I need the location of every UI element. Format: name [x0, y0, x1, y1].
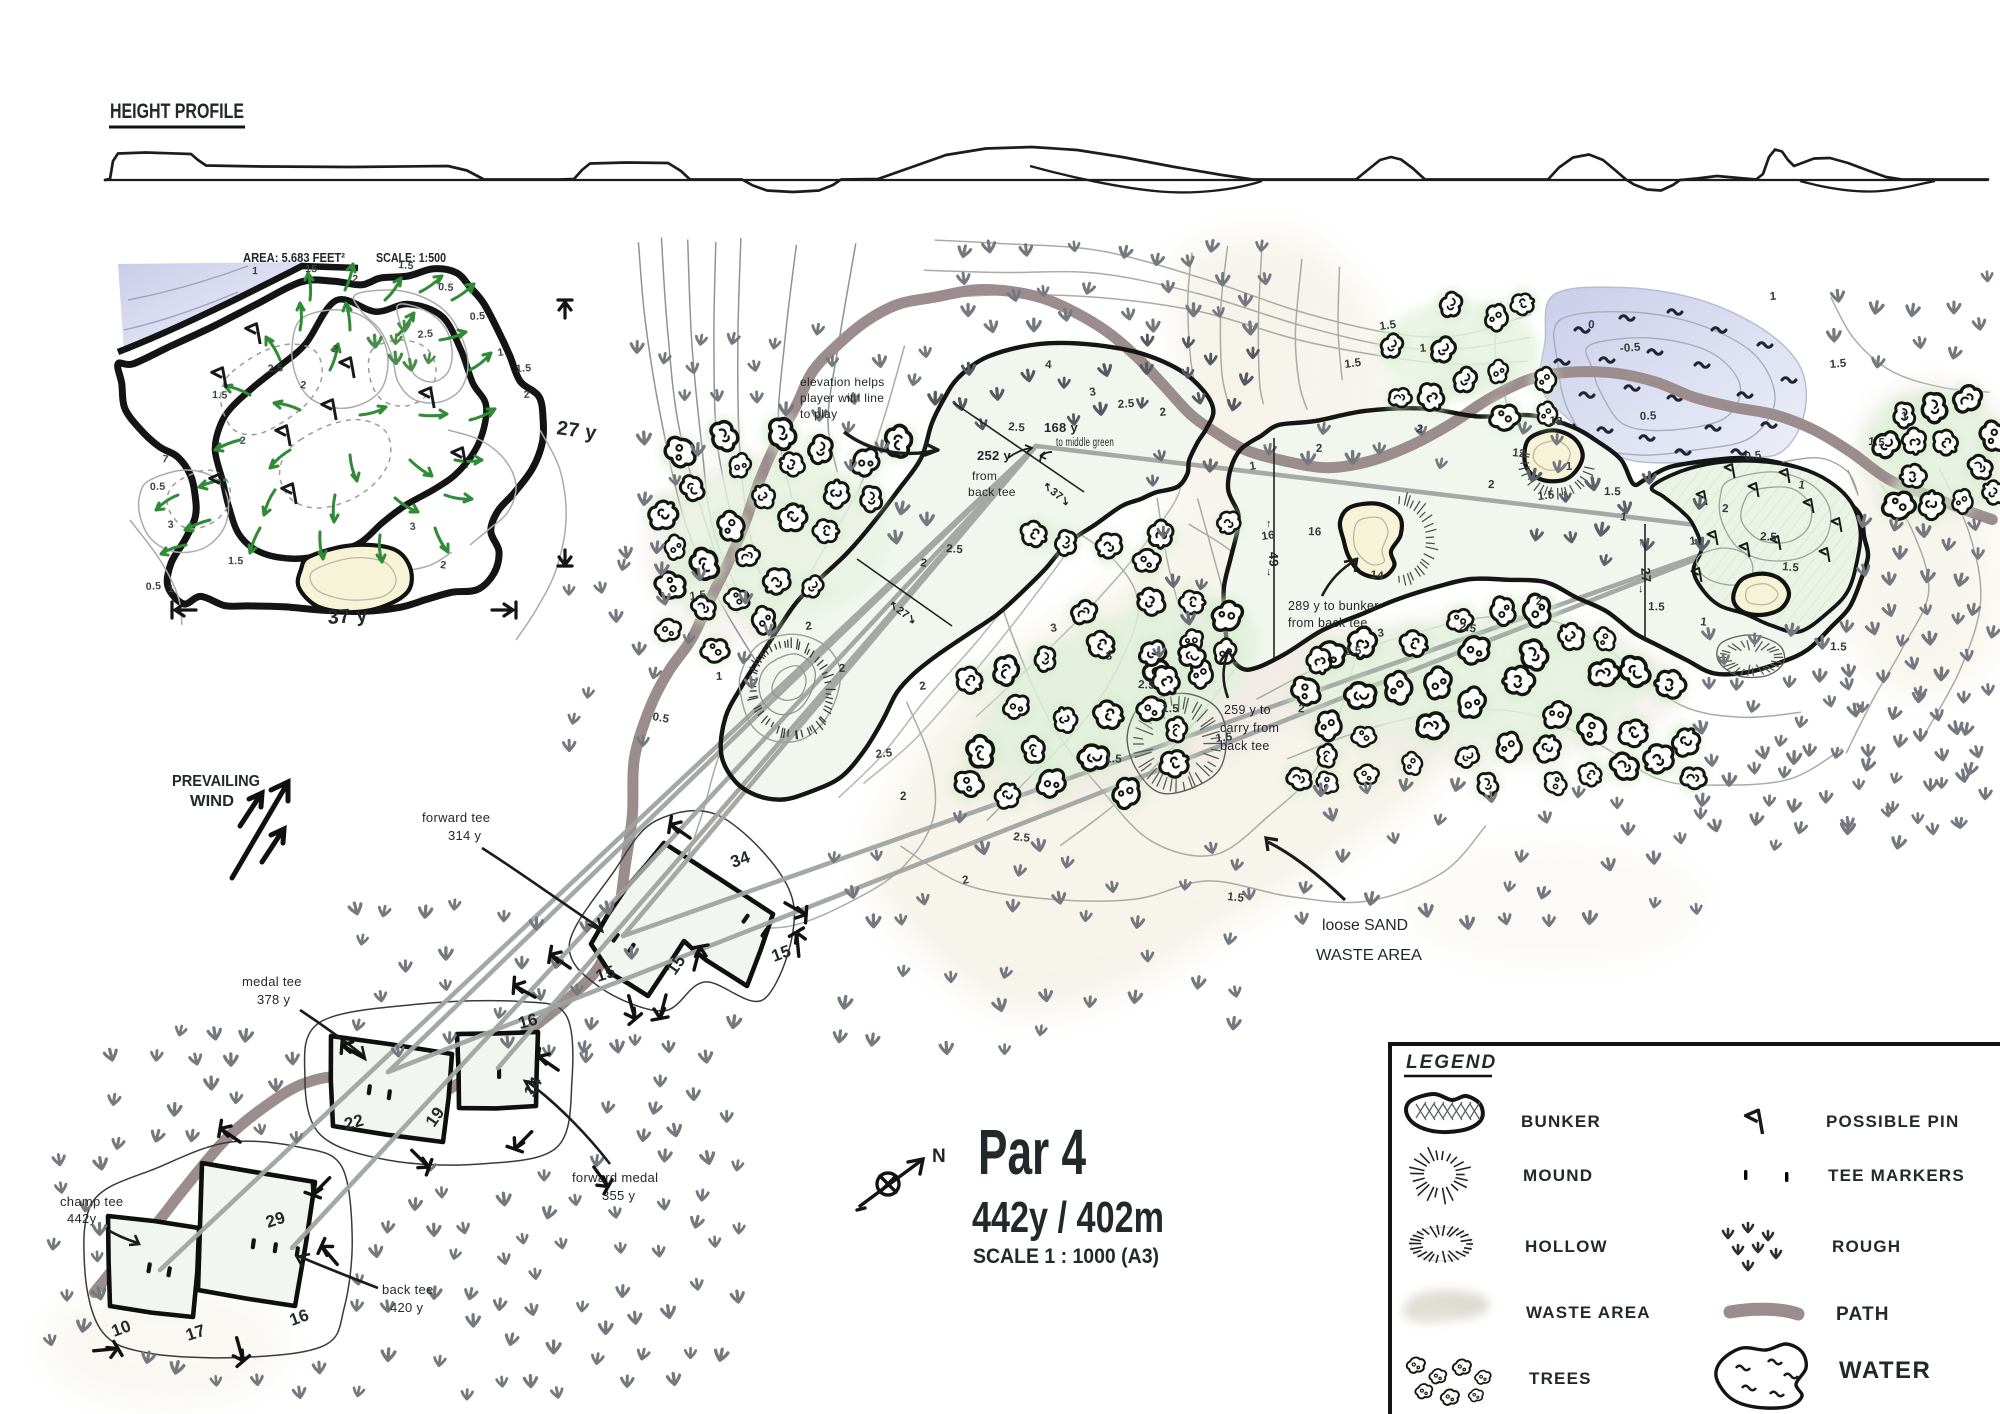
svg-text:2.5: 2.5: [946, 543, 964, 556]
svg-text:-0.5: -0.5: [1619, 342, 1641, 355]
svg-text:314 y: 314 y: [448, 828, 482, 843]
svg-text:TREES: TREES: [1529, 1369, 1592, 1388]
svg-text:PREVAILING: PREVAILING: [172, 773, 260, 790]
svg-text:back tee: back tee: [1220, 739, 1270, 753]
svg-text:2: 2: [1722, 503, 1729, 515]
svg-text:↓: ↓: [1266, 566, 1272, 578]
svg-text:from back tee: from back tee: [1288, 616, 1368, 630]
svg-text:0.5: 0.5: [1640, 410, 1658, 423]
svg-text:LEGEND: LEGEND: [1406, 1052, 1497, 1073]
svg-text:1.5: 1.5: [1830, 641, 1848, 654]
svg-text:ROUGH: ROUGH: [1832, 1237, 1901, 1256]
svg-text:2: 2: [1536, 596, 1543, 608]
svg-text:14: 14: [1370, 569, 1385, 583]
svg-text:2.5: 2.5: [417, 328, 433, 341]
svg-text:1.5: 1.5: [1227, 891, 1245, 905]
svg-text:BUNKER: BUNKER: [1521, 1112, 1601, 1131]
svg-text:Par 4: Par 4: [978, 1116, 1086, 1188]
svg-text:16: 16: [1308, 526, 1322, 538]
svg-text:1.5: 1.5: [1162, 703, 1179, 715]
svg-text:0.5: 0.5: [145, 580, 161, 593]
svg-text:27: 27: [1638, 567, 1654, 583]
svg-text:1: 1: [252, 265, 259, 277]
svg-text:2.5: 2.5: [1117, 398, 1135, 411]
svg-text:MOUND: MOUND: [1523, 1166, 1593, 1185]
svg-text:2: 2: [839, 663, 846, 675]
svg-text:3: 3: [167, 519, 174, 531]
svg-text:2.5: 2.5: [268, 362, 284, 375]
svg-text:2.5: 2.5: [1345, 645, 1363, 658]
svg-text:1: 1: [168, 583, 174, 595]
svg-text:WASTE AREA: WASTE AREA: [1526, 1303, 1651, 1322]
svg-text:2.5: 2.5: [875, 747, 893, 761]
svg-text:0.5: 0.5: [150, 481, 166, 493]
svg-text:1.5: 1.5: [398, 259, 414, 272]
svg-text:N: N: [932, 1146, 946, 1167]
svg-text:WIND: WIND: [190, 793, 234, 810]
svg-text:1.5: 1.5: [1105, 753, 1123, 766]
svg-text:player with line: player with line: [800, 391, 884, 405]
svg-text:HEIGHT PROFILE: HEIGHT PROFILE: [110, 100, 244, 123]
svg-text:2: 2: [1159, 406, 1167, 419]
svg-text:SCALE 1 : 1000 (A3): SCALE 1 : 1000 (A3): [973, 1245, 1159, 1268]
svg-text:15: 15: [305, 263, 317, 275]
svg-text:2.5: 2.5: [1760, 531, 1778, 544]
svg-text:1.5: 1.5: [1537, 489, 1555, 503]
svg-text:252 y: 252 y: [977, 448, 1012, 463]
svg-text:TEE MARKERS: TEE MARKERS: [1828, 1166, 1965, 1185]
svg-text:↓: ↓: [1638, 583, 1644, 595]
svg-text:13: 13: [1549, 415, 1563, 428]
svg-text:elevation helps: elevation helps: [800, 375, 885, 389]
svg-text:2.5: 2.5: [1138, 679, 1156, 692]
svg-text:medal tee: medal tee: [242, 974, 302, 989]
svg-text:1: 1: [1419, 342, 1427, 355]
svg-text:1.5: 1.5: [1648, 601, 1666, 614]
svg-text:WASTE AREA: WASTE AREA: [1316, 947, 1422, 964]
svg-text:289 y to bunker: 289 y to bunker: [1288, 599, 1379, 613]
svg-text:1.5: 1.5: [1604, 486, 1621, 498]
svg-text:3: 3: [1105, 650, 1113, 663]
svg-text:1.5: 1.5: [1344, 357, 1363, 371]
svg-text:champ tee: champ tee: [60, 1194, 123, 1209]
svg-text:POSSIBLE PIN: POSSIBLE PIN: [1826, 1112, 1959, 1131]
svg-text:168 y: 168 y: [1044, 420, 1079, 435]
svg-text:2: 2: [1488, 479, 1495, 491]
svg-text:1.5: 1.5: [1868, 436, 1886, 449]
svg-text:2: 2: [300, 379, 307, 392]
svg-text:49: 49: [1266, 552, 1282, 568]
svg-text:442y / 402m: 442y / 402m: [972, 1193, 1164, 1242]
svg-text:0.5: 0.5: [438, 281, 454, 294]
svg-text:1: 1: [1769, 291, 1777, 303]
svg-text:12: 12: [1512, 447, 1527, 460]
svg-text:1.5: 1.5: [1829, 358, 1847, 371]
svg-text:2: 2: [1316, 443, 1323, 455]
svg-text:4: 4: [1045, 359, 1053, 371]
svg-text:378 y: 378 y: [257, 992, 291, 1007]
svg-text:to middle green: to middle green: [1056, 437, 1114, 449]
svg-text:2.5: 2.5: [1013, 831, 1031, 845]
svg-text:1: 1: [1566, 461, 1574, 473]
svg-text:2: 2: [523, 389, 530, 401]
svg-text:259 y to: 259 y to: [1224, 703, 1271, 717]
svg-text:16: 16: [1261, 529, 1276, 543]
svg-text:1.5: 1.5: [689, 589, 708, 603]
svg-text:to play: to play: [800, 407, 837, 421]
svg-text:37 y: 37 y: [327, 604, 369, 629]
svg-text:back tee: back tee: [382, 1282, 434, 1297]
svg-text:1.5: 1.5: [212, 389, 228, 402]
svg-text:2: 2: [440, 559, 447, 572]
svg-text:2: 2: [900, 791, 907, 803]
svg-text:1.5: 1.5: [1379, 319, 1398, 333]
svg-text:from: from: [972, 469, 997, 483]
svg-text:HOLLOW: HOLLOW: [1525, 1237, 1608, 1256]
svg-text:442y: 442y: [67, 1211, 97, 1226]
svg-text:2: 2: [352, 273, 359, 285]
svg-text:WATER: WATER: [1839, 1357, 1931, 1384]
svg-text:2: 2: [240, 435, 247, 447]
svg-text:2.5: 2.5: [1008, 421, 1026, 434]
svg-text:1: 1: [716, 671, 723, 683]
svg-text:1.5: 1.5: [1782, 561, 1800, 574]
svg-text:2: 2: [1298, 703, 1306, 715]
svg-text:1.5: 1.5: [516, 362, 532, 375]
svg-text:0: 0: [1588, 319, 1595, 331]
svg-text:back tee: back tee: [968, 485, 1016, 499]
svg-text:420 y: 420 y: [390, 1300, 424, 1315]
svg-text:1.5: 1.5: [228, 555, 244, 567]
svg-text:↑: ↑: [1638, 536, 1644, 548]
svg-text:3: 3: [409, 521, 416, 533]
svg-text:forward tee: forward tee: [422, 810, 490, 825]
svg-text:loose SAND: loose SAND: [1322, 917, 1408, 934]
svg-text:↑: ↑: [1266, 518, 1272, 530]
svg-text:PATH: PATH: [1836, 1304, 1890, 1325]
svg-text:0.5: 0.5: [1744, 450, 1762, 463]
svg-text:forward medal: forward medal: [572, 1170, 658, 1185]
svg-text:carry from: carry from: [1220, 721, 1279, 735]
svg-text:0.5: 0.5: [469, 310, 485, 323]
